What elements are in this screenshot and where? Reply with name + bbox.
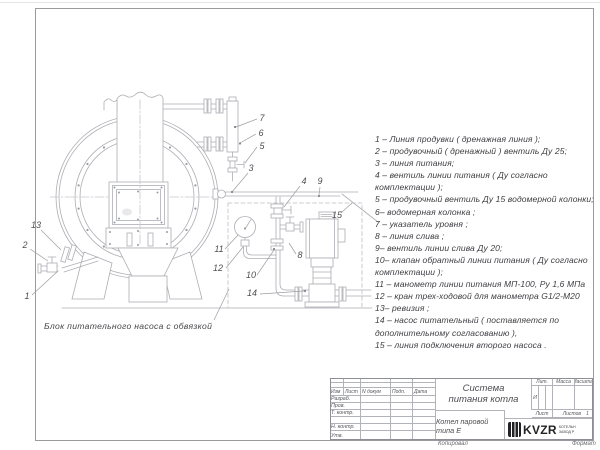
pos-label-4: 4 (301, 176, 306, 186)
feed-drop-pipe (271, 197, 309, 296)
pos-label-14: 14 (247, 288, 257, 298)
check-valve (271, 239, 283, 250)
feed-valve (271, 204, 291, 218)
pos-label-8: 8 (297, 250, 302, 260)
drain-stub-valve (280, 217, 303, 232)
pump-motor (306, 219, 338, 258)
format-label: Формат (572, 441, 596, 447)
parts-list-item: 13– ревизия ; (375, 302, 600, 314)
second-pump-connection-line (342, 194, 378, 222)
pos-label-6: 6 (258, 128, 263, 138)
pos-label-11: 11 (214, 244, 223, 254)
parts-list-item: 11 – манометр линии питания МП-100, Ру 1… (375, 278, 600, 290)
three-way-cock (241, 240, 249, 246)
pos-label-7: 7 (259, 113, 265, 123)
parts-list-item: 12 – кран трех-ходовой для манометра G1/… (375, 290, 600, 302)
pos-label-2: 2 (21, 240, 27, 250)
title-block-outline (330, 378, 593, 440)
parts-list-item: 9– вентиль линии слива Ду 20; (375, 242, 600, 254)
chimney (104, 92, 163, 183)
drawing-sheet: { "colors": {"line": "#adaeb4", "label":… (0, 0, 600, 450)
pos-label-5: 5 (259, 141, 265, 151)
pos-label-12: 12 (213, 263, 223, 273)
water-gauge-column (163, 97, 244, 181)
parts-list-item: 14 – насос питательный ( поставляется по… (375, 314, 600, 338)
parts-list-item: 3 – линия питания; (375, 157, 600, 169)
revision-fitting (61, 247, 70, 263)
manometer (235, 217, 277, 259)
column-blowdown-valve (228, 152, 244, 181)
parts-list-item: 1 – Линия продувки ( дренажная линия ); (375, 133, 600, 145)
pos-label-15: 15 (332, 210, 343, 220)
parts-list-item: 6– водомерная колонка ; (375, 206, 600, 218)
pos-label-3: 3 (248, 163, 253, 173)
title-block: Изм Лист N докум Подп. Дата Разраб. Пров… (330, 378, 593, 440)
parts-list-item: 7 – указатель уровня ; (375, 218, 600, 230)
parts-list-item: 4 – вентиль линии питания ( Ду согласно … (375, 169, 600, 193)
parts-list-item: 5 – продувочный вентиль Ду 15 водомерной… (375, 193, 600, 205)
blowdown-valve (47, 257, 57, 272)
boiler-door (109, 182, 168, 228)
parts-list-item: 10– клапан обратный линии питания ( Ду с… (375, 254, 600, 278)
kopiroval-label: Копировал (438, 441, 468, 447)
caption-leader (214, 289, 229, 320)
burner-mount (106, 228, 178, 302)
feed-pump (295, 212, 371, 307)
parts-list-item: 15 – линия подключения второго насоса . (375, 339, 600, 351)
parts-list: 1 – Линия продувки ( дренажная линия ); … (375, 133, 600, 351)
drawing-caption: Блок питательного насоса с обвязкой (44, 321, 212, 331)
pos-label-13: 13 (31, 220, 41, 230)
parts-list-item: 2 – продувочный ( дренажный ) вентиль Ду… (375, 145, 600, 157)
pos-label-10: 10 (246, 270, 256, 280)
parts-list-item: 8 – линия слива ; (375, 230, 600, 242)
feed-line (213, 189, 378, 222)
pos-label-1: 1 (24, 291, 29, 301)
pos-label-9: 9 (317, 176, 322, 186)
